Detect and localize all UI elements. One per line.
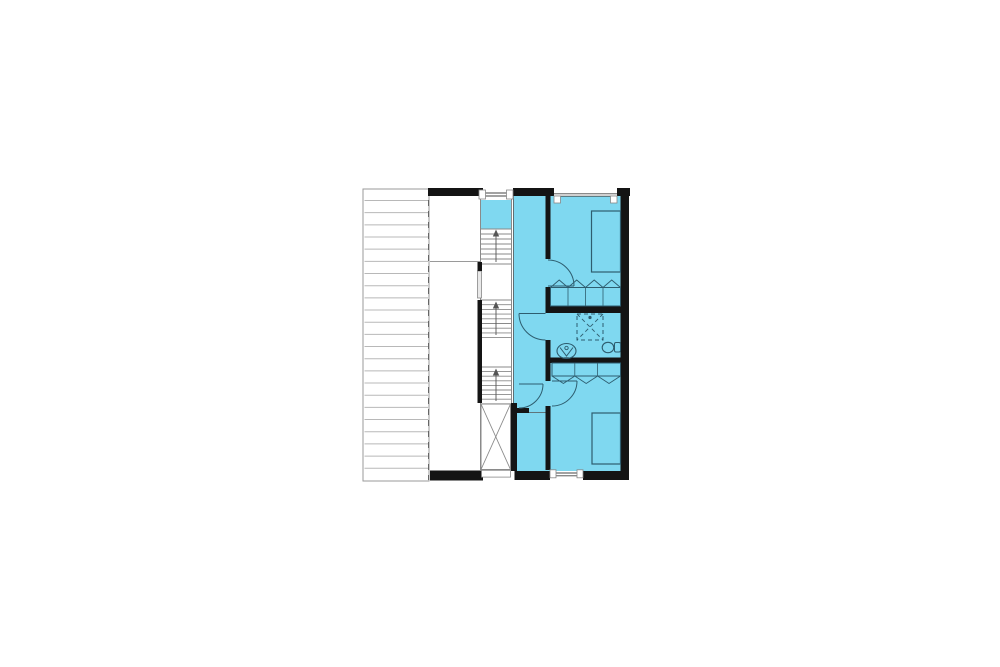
stair-landing-floor [481,200,512,229]
stairwell-window [478,271,482,298]
apartment-floor [513,196,621,471]
wall-stairwell [478,300,483,403]
wall-bottom-a [430,471,483,481]
window-bed1-jamb-1 [554,196,561,203]
window-stair-jamb-1 [479,190,486,199]
floor-plan-canvas [0,0,1000,667]
wall-hall-1 [546,196,551,259]
terrace-area [363,189,429,481]
wall-bath-top [546,306,621,313]
wall-store-left [511,403,517,471]
wall-hall-4 [546,406,551,470]
stair-arrow-1-head [493,230,499,237]
wall-store-stub [517,408,529,413]
floor-plan-svg [0,0,1000,667]
wall-hall-3 [546,340,551,381]
window-bed2-jamb-2 [577,470,583,478]
wall-bath-bottom [550,358,621,364]
shower-drain [588,316,591,319]
window-bed2-jamb-1 [550,470,556,478]
wall-right [621,188,630,479]
wall-top-a [428,188,483,196]
window-stair-jamb-2 [507,190,514,199]
window-void-bottom [482,470,511,477]
wall-bottom-c [583,471,629,480]
wall-top-b [513,188,554,196]
wall-stair-stub [478,262,483,271]
window-bed1-jamb-2 [611,196,618,203]
wall-bottom-b [515,471,551,480]
